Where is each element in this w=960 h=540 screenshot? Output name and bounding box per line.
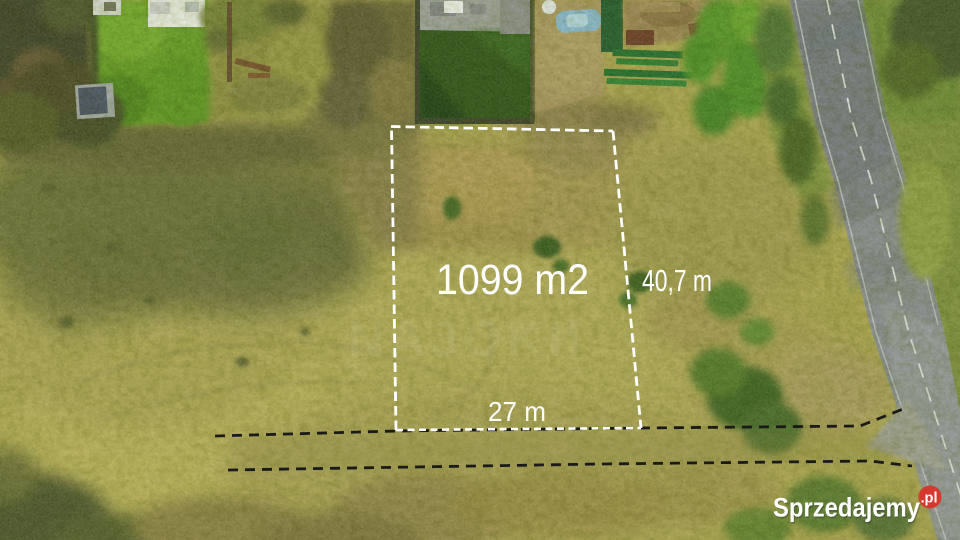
- svg-text:40,7 m: 40,7 m: [642, 263, 712, 298]
- svg-text:Sprzedajemy: Sprzedajemy: [773, 493, 920, 523]
- svg-text:.pl: .pl: [921, 490, 938, 507]
- svg-text:NAJOKII: NAJOKII: [348, 311, 586, 367]
- svg-text:27 m: 27 m: [488, 396, 546, 427]
- svg-text:1099 m2: 1099 m2: [436, 256, 589, 304]
